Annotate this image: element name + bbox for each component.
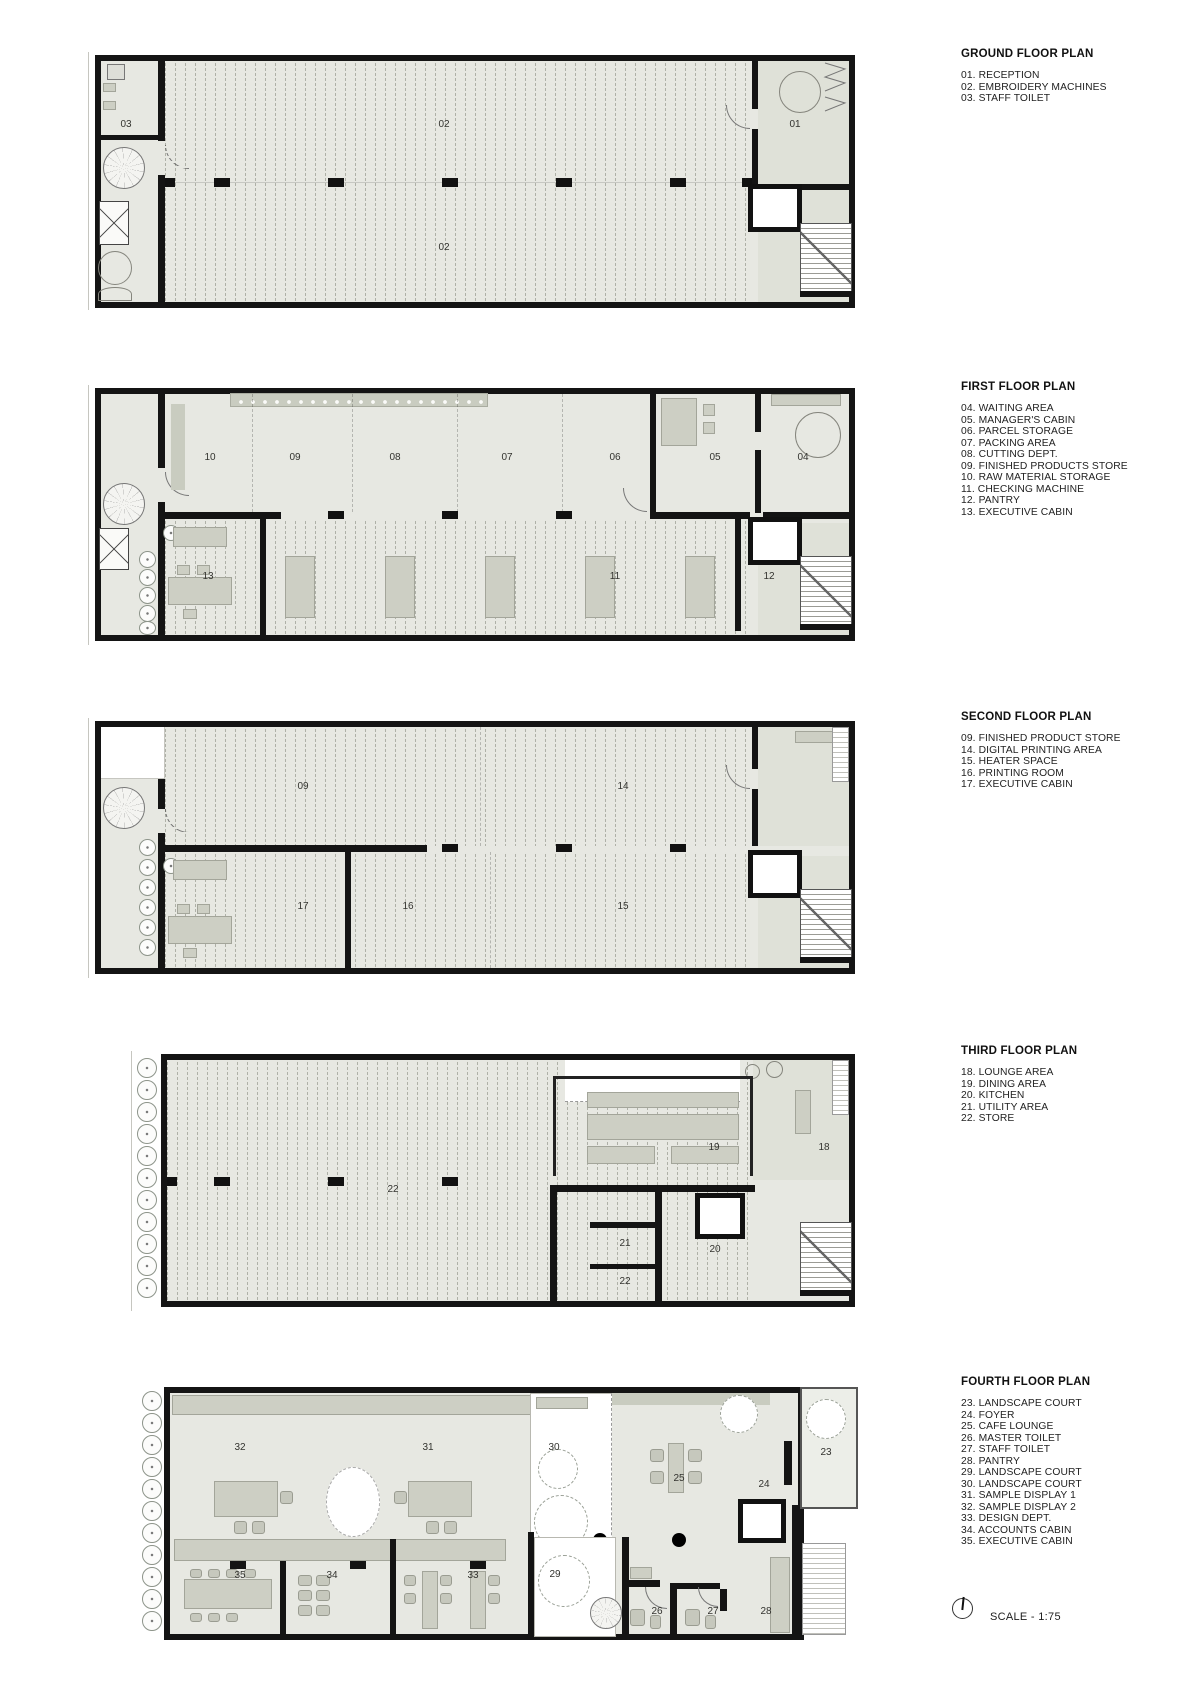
- spiral-stair: [103, 483, 145, 525]
- room-label: 20: [709, 1244, 720, 1255]
- display-counter: [174, 1539, 506, 1561]
- legend-title: FIRST FLOOR PLAN: [961, 381, 1191, 393]
- room-label: 29: [549, 1569, 560, 1580]
- staircase: [800, 889, 852, 959]
- legend-title: THIRD FLOOR PLAN: [961, 1045, 1191, 1057]
- desk: [168, 577, 232, 605]
- legend-item: 03. STAFF TOILET: [961, 93, 1191, 105]
- floor-plan-sheet: 03 02 01 02: [0, 0, 1200, 1698]
- lounge-seat: [795, 1090, 811, 1134]
- desk: [408, 1481, 472, 1517]
- desk: [214, 1481, 278, 1517]
- fourth-floor-plan: 32 31 30 23 25 24 35 34 33 29 26 27 28: [140, 1387, 860, 1642]
- toilet-fixture: [650, 1615, 661, 1629]
- room-label: 28: [760, 1606, 771, 1617]
- room-label: 24: [758, 1479, 769, 1490]
- legend-third-floor: THIRD FLOOR PLAN 18. LOUNGE AREA 19. DIN…: [961, 1045, 1191, 1125]
- legend-second-floor: SECOND FLOOR PLAN 09. FINISHED PRODUCT S…: [961, 711, 1191, 791]
- chair: [190, 1613, 202, 1622]
- machine: [685, 556, 715, 618]
- room-label: 02: [438, 119, 449, 130]
- toilet-fixture: [630, 1609, 645, 1626]
- display-shelf: [172, 1395, 560, 1415]
- legend-item: 30. LANDSCAPE COURT: [961, 1479, 1191, 1491]
- second-floor-plan: 09 14 17 16 15: [95, 721, 860, 976]
- legend-item: 04. WAITING AREA: [961, 403, 1191, 415]
- legend-item: 16. PRINTING ROOM: [961, 768, 1191, 780]
- external-stair: [832, 727, 849, 782]
- legend-item: 22. STORE: [961, 1113, 1191, 1125]
- room-label: 05: [709, 452, 720, 463]
- legend-item: 26. MASTER TOILET: [961, 1433, 1191, 1445]
- spiral-stair: [103, 787, 145, 829]
- chair: [208, 1569, 220, 1578]
- room-label: 32: [234, 1442, 245, 1453]
- legend-item: 23. LANDSCAPE COURT: [961, 1398, 1191, 1410]
- vent-band: [230, 393, 488, 407]
- legend-item: 07. PACKING AREA: [961, 438, 1191, 450]
- sofa: [173, 527, 227, 547]
- room-label: 25: [673, 1473, 684, 1484]
- legend-first-floor: FIRST FLOOR PLAN 04. WAITING AREA 05. MA…: [961, 381, 1191, 518]
- chair: [688, 1449, 702, 1462]
- legend-item: 15. HEATER SPACE: [961, 756, 1191, 768]
- toilet-fixture: [705, 1615, 716, 1629]
- legend-item: 34. ACCOUNTS CABIN: [961, 1525, 1191, 1537]
- room-label: 16: [402, 901, 413, 912]
- cafe-table: [668, 1443, 684, 1493]
- chair: [208, 1613, 220, 1622]
- elevator: [748, 850, 802, 898]
- chair: [650, 1449, 664, 1462]
- oval-feature: [326, 1467, 380, 1537]
- ground-floor-plan: 03 02 01 02: [95, 55, 860, 308]
- legend-item: 29. LANDSCAPE COURT: [961, 1467, 1191, 1479]
- chair: [197, 904, 210, 914]
- tank: [98, 251, 132, 285]
- chair: [280, 1491, 293, 1504]
- legend-title: GROUND FLOOR PLAN: [961, 48, 1191, 60]
- legend-item: 11. CHECKING MACHINE: [961, 484, 1191, 496]
- dining-table: [587, 1114, 739, 1140]
- legend-item: 27. STAFF TOILET: [961, 1444, 1191, 1456]
- room-label: 10: [204, 452, 215, 463]
- chair: [703, 422, 715, 434]
- room-label: 01: [789, 119, 800, 130]
- room-label: 15: [617, 901, 628, 912]
- desk: [661, 398, 697, 446]
- legend-item: 33. DESIGN DEPT.: [961, 1513, 1191, 1525]
- chair: [234, 1521, 247, 1534]
- round-table: [779, 71, 821, 113]
- tree: [538, 1449, 578, 1489]
- room-label: 12: [763, 571, 774, 582]
- spiral-stair: [103, 147, 145, 189]
- legend-item: 05. MANAGER'S CABIN: [961, 415, 1191, 427]
- conference-table: [184, 1579, 272, 1609]
- chair: [650, 1471, 664, 1484]
- legend-item: 32. SAMPLE DISPLAY 2: [961, 1502, 1191, 1514]
- external-stair: [832, 1060, 849, 1115]
- legend-item: 25. CAFE LOUNGE: [961, 1421, 1191, 1433]
- legend-ground-floor: GROUND FLOOR PLAN 01. RECEPTION 02. EMBR…: [961, 48, 1191, 105]
- legend-item: 21. UTILITY AREA: [961, 1102, 1191, 1114]
- legend-item: 08. CUTTING DEPT.: [961, 449, 1191, 461]
- room-label: 35: [234, 1570, 245, 1581]
- room-label: 18: [818, 1142, 829, 1153]
- room-label: 06: [609, 452, 620, 463]
- legend-item: 12. PANTRY: [961, 495, 1191, 507]
- legend-item: 13. EXECUTIVE CABIN: [961, 507, 1191, 519]
- room-label: 31: [422, 1442, 433, 1453]
- tree: [538, 1555, 590, 1607]
- printing-floor: [165, 852, 752, 968]
- room-label: 22: [387, 1184, 398, 1195]
- tank: [98, 287, 132, 301]
- room-label: 26: [651, 1606, 662, 1617]
- column-dot: [672, 1533, 686, 1547]
- toilet-fixture: [103, 83, 116, 92]
- legend-item: 19. DINING AREA: [961, 1079, 1191, 1091]
- dining-table: [587, 1146, 655, 1164]
- legend-title: FOURTH FLOOR PLAN: [961, 1376, 1191, 1388]
- room-label: 17: [297, 901, 308, 912]
- legend-item: 02. EMBROIDERY MACHINES: [961, 82, 1191, 94]
- elevator: [748, 517, 802, 565]
- dining-table: [671, 1146, 739, 1164]
- room-label: 27: [707, 1606, 718, 1617]
- staircase: [800, 556, 852, 626]
- chair: [444, 1521, 457, 1534]
- machine: [485, 556, 515, 618]
- scale-note: SCALE - 1:75: [990, 1611, 1061, 1623]
- machine: [385, 556, 415, 618]
- chair: [244, 1569, 256, 1578]
- third-floor-plan: 22 19 18 21 20 22: [95, 1054, 860, 1309]
- spiral-stair: [590, 1597, 622, 1629]
- chair: [703, 404, 715, 416]
- chair: [183, 948, 197, 958]
- legend-item: 20. KITCHEN: [961, 1090, 1191, 1102]
- room-label: 07: [501, 452, 512, 463]
- room-label: 19: [708, 1142, 719, 1153]
- tree: [720, 1395, 758, 1433]
- legend-item: 09. FINISHED PRODUCT STORE: [961, 733, 1191, 745]
- elevator: [748, 184, 802, 232]
- room-label: 13: [202, 571, 213, 582]
- shaft: [99, 201, 129, 245]
- chair: [183, 609, 197, 619]
- toilet-fixture: [103, 101, 116, 110]
- room-label: 30: [548, 1442, 559, 1453]
- machine: [285, 556, 315, 618]
- room-label: 11: [610, 571, 620, 582]
- chair: [252, 1521, 265, 1534]
- chair: [177, 904, 190, 914]
- shaft: [99, 528, 129, 570]
- north-arrow-icon: [952, 1598, 973, 1619]
- room-label: 08: [389, 452, 400, 463]
- legend-fourth-floor: FOURTH FLOOR PLAN 23. LANDSCAPE COURT 24…: [961, 1376, 1191, 1548]
- tree: [806, 1399, 846, 1439]
- first-floor-plan: 10 09 08 07 06 05 04 13 11 12: [95, 388, 860, 643]
- legend-item: 18. LOUNGE AREA: [961, 1067, 1191, 1079]
- ramp-zigzag: [823, 61, 849, 115]
- chair: [226, 1613, 238, 1622]
- room-label: 09: [297, 781, 308, 792]
- legend-item: 24. FOYER: [961, 1410, 1191, 1422]
- legend-item: 10. RAW MATERIAL STORAGE: [961, 472, 1191, 484]
- chair: [190, 1569, 202, 1578]
- legend-item: 17. EXECUTIVE CABIN: [961, 779, 1191, 791]
- dining-table: [587, 1092, 739, 1108]
- legend-item: 35. EXECUTIVE CABIN: [961, 1536, 1191, 1548]
- legend-item: 14. DIGITAL PRINTING AREA: [961, 745, 1191, 757]
- room-label: 21: [619, 1238, 630, 1249]
- room-label: 04: [797, 452, 808, 463]
- terrace: [101, 727, 165, 779]
- legend-item: 06. PARCEL STORAGE: [961, 426, 1191, 438]
- staircase: [800, 1222, 852, 1292]
- room-label: 09: [289, 452, 300, 463]
- legend-title: SECOND FLOOR PLAN: [961, 711, 1191, 723]
- staircase: [800, 223, 852, 293]
- elevator: [695, 1193, 745, 1239]
- legend-item: 09. FINISHED PRODUCTS STORE: [961, 461, 1191, 473]
- chair: [394, 1491, 407, 1504]
- room-label: 34: [326, 1570, 337, 1581]
- store-floor: [165, 727, 752, 846]
- desk: [168, 916, 232, 944]
- toilet-fixture: [685, 1609, 700, 1626]
- sofa: [173, 860, 227, 880]
- chair: [688, 1471, 702, 1484]
- work-table: [422, 1571, 438, 1629]
- legend-item: 31. SAMPLE DISPLAY 1: [961, 1490, 1191, 1502]
- chair: [426, 1521, 439, 1534]
- legend-item: 01. RECEPTION: [961, 70, 1191, 82]
- room-label: 03: [120, 119, 131, 130]
- elevator: [738, 1499, 786, 1543]
- legend-item: 28. PANTRY: [961, 1456, 1191, 1468]
- external-stair: [802, 1543, 846, 1635]
- room-label: 23: [820, 1447, 831, 1458]
- lower-hall-floor: [165, 519, 752, 635]
- room-label: 22: [619, 1276, 630, 1287]
- room-label: 02: [438, 242, 449, 253]
- room-label: 14: [617, 781, 628, 792]
- chair: [177, 565, 190, 575]
- room-label: 33: [467, 1570, 478, 1581]
- machine: [585, 556, 615, 618]
- equipment-box: [107, 64, 125, 80]
